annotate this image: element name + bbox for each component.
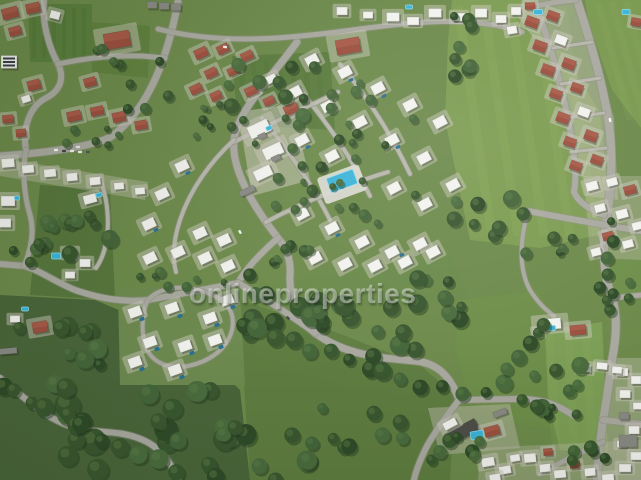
tree-highlight: [467, 22, 473, 28]
tree-highlight: [172, 434, 180, 442]
tree-highlight: [530, 372, 535, 377]
tree-highlight: [170, 466, 177, 473]
tree-highlight: [37, 400, 46, 409]
house: [0, 192, 20, 210]
roof-slope: [525, 6, 535, 10]
house: [1, 56, 19, 71]
roof-highlight: [497, 16, 506, 22]
tree-highlight: [375, 220, 378, 223]
tree-highlight: [412, 192, 416, 196]
house: [619, 435, 639, 449]
tree-highlight: [267, 315, 276, 324]
tree-highlight: [458, 303, 463, 308]
roof-highlight: [630, 427, 639, 433]
roof-highlight: [11, 317, 19, 322]
tree-highlight: [164, 92, 169, 97]
tree-highlight: [253, 141, 256, 144]
tree-highlight: [254, 77, 260, 83]
house: [628, 373, 641, 387]
tree-highlight: [364, 362, 372, 370]
house: [17, 161, 39, 177]
roof-highlight: [81, 260, 90, 266]
tree-highlight: [300, 247, 305, 252]
tree-highlight: [502, 364, 508, 370]
tree-highlight: [250, 321, 259, 330]
roof-highlight: [585, 469, 594, 476]
tree-highlight: [71, 127, 75, 131]
tree-highlight: [156, 268, 161, 273]
roof-highlight: [603, 475, 613, 480]
tree-highlight: [124, 105, 129, 110]
roof-highlight: [338, 8, 347, 14]
house: [580, 464, 600, 480]
house: [615, 461, 635, 475]
tree-highlight: [450, 71, 456, 77]
house: [171, 4, 183, 13]
roof-highlight: [634, 404, 641, 409]
tree-highlight: [398, 433, 404, 439]
house: [110, 179, 128, 193]
tree-highlight: [329, 434, 334, 439]
tree-highlight: [330, 184, 333, 187]
tree-highlight: [328, 90, 333, 95]
tree-highlight: [494, 222, 501, 229]
tree-highlight: [280, 91, 287, 98]
tree-highlight: [127, 81, 131, 85]
tree-highlight: [27, 398, 33, 404]
house: [159, 3, 171, 12]
tree-highlight: [451, 13, 455, 17]
house: [619, 413, 631, 422]
swimming-pool: [52, 253, 61, 259]
tree-highlight: [35, 240, 40, 245]
tree-highlight: [513, 352, 520, 359]
tree-highlight: [90, 461, 100, 471]
tree-highlight: [534, 329, 539, 334]
tree-highlight: [625, 295, 629, 299]
tree-highlight: [229, 422, 236, 429]
roof-highlight: [388, 14, 399, 21]
tree-highlight: [360, 211, 365, 216]
tree-highlight: [525, 337, 532, 344]
tree-highlight: [453, 433, 458, 438]
tree-highlight: [49, 223, 54, 228]
tree-highlight: [397, 326, 404, 333]
house: [616, 387, 635, 401]
roof-highlight: [632, 453, 641, 459]
tree-highlight: [105, 142, 108, 145]
house: [131, 184, 149, 198]
tree-highlight: [303, 309, 312, 318]
tree-highlight: [274, 78, 280, 84]
tree-highlight: [113, 441, 121, 449]
tree-highlight: [377, 429, 384, 436]
swimming-pool: [534, 10, 543, 15]
swimming-pool: [622, 10, 630, 15]
tree-highlight: [569, 447, 575, 453]
tree-highlight: [304, 345, 311, 352]
tree-highlight: [568, 456, 573, 461]
tree-highlight: [289, 145, 294, 150]
tree-highlight: [350, 204, 354, 208]
tree-highlight: [287, 62, 293, 68]
house: [597, 470, 619, 480]
car: [62, 150, 66, 153]
roof-highlight: [66, 273, 74, 278]
tree-highlight: [318, 404, 323, 409]
roof-highlight: [115, 183, 123, 189]
house: [0, 111, 18, 127]
house: [360, 9, 377, 22]
tree-highlight: [438, 382, 444, 388]
roof-highlight: [45, 170, 55, 177]
roof-highlight: [620, 465, 630, 471]
house: [424, 5, 446, 21]
tree-highlight: [573, 411, 577, 415]
tree-highlight: [299, 162, 303, 166]
tree-highlight: [10, 247, 14, 251]
tree-highlight: [471, 452, 476, 457]
tree-highlight: [74, 418, 82, 426]
roof-highlight: [476, 10, 486, 17]
aerial-photo: onlineproperties: [0, 0, 641, 480]
house: [333, 4, 352, 18]
tree-highlight: [103, 232, 111, 240]
tree-highlight: [72, 216, 78, 222]
tree-highlight: [395, 417, 402, 424]
tree-highlight: [382, 142, 386, 146]
house: [502, 21, 521, 38]
tree-highlight: [156, 58, 160, 62]
house: [403, 14, 423, 28]
tree-highlight: [245, 270, 251, 276]
tree-highlight: [292, 206, 296, 210]
tree-highlight: [376, 364, 384, 372]
tree-highlight: [352, 155, 356, 159]
house-roof: [159, 3, 169, 10]
house: [382, 9, 404, 25]
tree-highlight: [64, 349, 70, 355]
swimming-pool: [22, 307, 29, 311]
tree-highlight: [367, 96, 372, 101]
house: [147, 2, 159, 11]
tree-highlight: [228, 123, 232, 127]
tree-highlight: [444, 278, 449, 283]
tree-highlight: [310, 63, 315, 68]
tree-highlight: [96, 435, 103, 442]
tree-highlight: [574, 381, 579, 386]
tree-highlight: [116, 132, 119, 135]
roof-highlight: [2, 159, 14, 167]
car: [78, 151, 82, 154]
roof-highlight: [430, 10, 441, 17]
tree-highlight: [352, 87, 357, 92]
tree-highlight: [42, 217, 49, 224]
tree-highlight: [283, 115, 287, 119]
tree-highlight: [410, 115, 414, 119]
car: [70, 150, 74, 153]
roof-highlight: [67, 174, 76, 181]
tree-highlight: [326, 345, 332, 351]
house: [12, 125, 30, 141]
tree-highlight: [470, 220, 475, 225]
tree-highlight: [200, 116, 204, 120]
tree-highlight: [63, 140, 67, 144]
tree-highlight: [55, 322, 62, 329]
tree-highlight: [137, 274, 141, 278]
roof-highlight: [2, 197, 14, 205]
tree-highlight: [64, 248, 71, 255]
tree-highlight: [428, 456, 433, 461]
roof-highlight: [90, 178, 99, 185]
swimming-pool: [406, 5, 413, 9]
car: [76, 146, 80, 149]
tree-highlight: [414, 382, 421, 389]
solar-panel: [3, 58, 15, 60]
house-roof: [171, 4, 181, 11]
roof-highlight: [540, 465, 549, 472]
house: [540, 445, 556, 459]
tree-highlight: [49, 377, 57, 385]
house: [626, 13, 641, 30]
tree-highlight: [189, 383, 198, 392]
tree-highlight: [444, 435, 451, 442]
tree-highlight: [345, 355, 351, 361]
house: [85, 173, 105, 189]
roof-highlight: [525, 454, 536, 462]
roof-highlight: [0, 220, 10, 227]
tree-highlight: [254, 460, 261, 467]
tree-highlight: [538, 320, 544, 326]
tree-highlight: [350, 140, 354, 144]
tree-highlight: [15, 323, 20, 328]
tree-highlight: [586, 442, 592, 448]
tree-highlight: [435, 447, 441, 453]
tree-highlight: [274, 256, 277, 259]
tree-highlight: [110, 58, 114, 62]
tree-highlight: [439, 292, 446, 299]
tree-highlight: [626, 279, 630, 283]
tree-highlight: [505, 192, 513, 200]
tree-highlight: [93, 138, 97, 142]
roof-highlight: [632, 377, 640, 383]
tree-highlight: [225, 81, 229, 85]
house-roof: [619, 413, 629, 420]
roof-highlight: [512, 8, 520, 14]
tree-highlight: [443, 307, 450, 314]
house-roof: [619, 435, 637, 447]
swimming-pool: [15, 196, 20, 200]
tree-highlight: [307, 246, 311, 250]
tree-highlight: [59, 381, 68, 390]
tree-highlight: [288, 334, 296, 342]
roof-highlight: [621, 391, 630, 397]
tree-highlight: [226, 100, 233, 107]
tree-highlight: [549, 233, 555, 239]
tree-highlight: [105, 127, 108, 130]
car: [86, 151, 90, 154]
tree-highlight: [218, 429, 225, 436]
tree-highlight: [360, 178, 363, 181]
tree-highlight: [367, 350, 374, 357]
solar-panel: [3, 61, 15, 63]
tree-highlight: [282, 245, 287, 250]
roof-highlight: [136, 188, 144, 194]
tree-highlight: [294, 121, 299, 126]
tree-highlight: [569, 235, 573, 239]
tree-highlight: [317, 163, 322, 168]
house: [630, 400, 641, 413]
tree-highlight: [307, 438, 313, 444]
watermark-text: onlineproperties: [189, 280, 416, 308]
tree-highlight: [603, 270, 609, 276]
tree-highlight: [201, 105, 204, 108]
tree-highlight: [551, 365, 557, 371]
house-roof: [0, 347, 17, 355]
tree-highlight: [194, 133, 197, 136]
tree-highlight: [601, 454, 606, 459]
tree-highlight: [336, 205, 340, 209]
tree-highlight: [472, 199, 479, 206]
tree-highlight: [455, 42, 460, 47]
tree-highlight: [531, 401, 537, 407]
house: [62, 269, 79, 282]
tree-highlight: [476, 437, 481, 442]
roof-highlight: [555, 471, 565, 478]
house: [39, 165, 61, 181]
tree-highlight: [217, 102, 220, 105]
roof-highlight: [613, 367, 621, 373]
tree-highlight: [183, 283, 188, 288]
tree-highlight: [269, 331, 277, 339]
tree-highlight: [518, 209, 524, 215]
tree-highlight: [217, 421, 224, 428]
tree-highlight: [337, 180, 340, 183]
tree-highlight: [164, 283, 168, 287]
tree-highlight: [335, 136, 340, 141]
house-roof: [147, 2, 157, 9]
tree-highlight: [152, 415, 159, 422]
roof-highlight: [364, 13, 372, 18]
tree-highlight: [85, 212, 90, 217]
house: [0, 215, 15, 231]
roof-highlight: [23, 166, 33, 173]
tree-highlight: [602, 253, 608, 259]
tree-highlight: [300, 95, 304, 99]
tree-highlight: [457, 389, 463, 395]
tree-highlight: [465, 61, 471, 67]
roof-highlight: [408, 18, 418, 24]
tree-highlight: [141, 104, 146, 109]
tree-highlight: [451, 54, 456, 59]
house: [564, 320, 593, 340]
tree-highlight: [549, 405, 553, 409]
house: [0, 154, 20, 172]
tree-highlight: [203, 459, 210, 466]
tree-highlight: [327, 104, 332, 109]
tree-highlight: [152, 452, 161, 461]
tree-highlight: [518, 396, 523, 401]
tree-highlight: [608, 218, 612, 222]
tree-highlight: [141, 387, 150, 396]
tree-highlight: [449, 213, 456, 220]
house: [608, 363, 626, 377]
tree-highlight: [464, 15, 470, 21]
tree-highlight: [357, 80, 360, 83]
tree-highlight: [565, 386, 571, 392]
tree-highlight: [574, 359, 582, 367]
tree-highlight: [308, 188, 312, 192]
tree-highlight: [368, 408, 375, 415]
tree-highlight: [595, 283, 601, 289]
tree-highlight: [603, 297, 608, 302]
car: [54, 149, 58, 152]
tree-highlight: [60, 448, 69, 457]
tree-highlight: [452, 198, 457, 203]
tree-highlight: [301, 179, 304, 182]
tree-highlight: [272, 202, 276, 206]
tree-highlight: [26, 258, 31, 263]
tree-highlight: [274, 174, 279, 179]
tree-highlight: [301, 198, 305, 202]
tree-highlight: [522, 249, 527, 254]
tree-highlight: [498, 376, 506, 384]
tree-highlight: [609, 290, 614, 295]
solar-panel: [3, 65, 15, 67]
tree-highlight: [609, 237, 615, 243]
tree-highlight: [62, 409, 69, 416]
aerial-photo-canvas: [0, 0, 641, 480]
tree-highlight: [153, 274, 156, 277]
tree-highlight: [297, 110, 304, 117]
tree-highlight: [346, 121, 349, 124]
tree-highlight: [80, 327, 86, 333]
tree-highlight: [78, 352, 86, 360]
tree-highlight: [132, 448, 140, 456]
tree-highlight: [301, 453, 309, 461]
tree-highlight: [343, 440, 350, 447]
tree-highlight: [395, 374, 401, 380]
roof-highlight: [597, 363, 606, 369]
tree-highlight: [373, 327, 379, 333]
house: [62, 169, 82, 185]
tree-highlight: [209, 470, 217, 478]
tree-highlight: [482, 388, 487, 393]
tree-highlight: [98, 45, 103, 50]
tree-highlight: [238, 320, 245, 327]
tree-highlight: [240, 117, 244, 121]
tree-highlight: [9, 385, 15, 391]
tree-highlight: [94, 47, 97, 50]
tree-highlight: [90, 342, 99, 351]
tree-highlight: [233, 60, 239, 66]
tree-highlight: [165, 401, 174, 410]
tree-highlight: [286, 429, 293, 436]
tree-highlight: [353, 130, 358, 135]
